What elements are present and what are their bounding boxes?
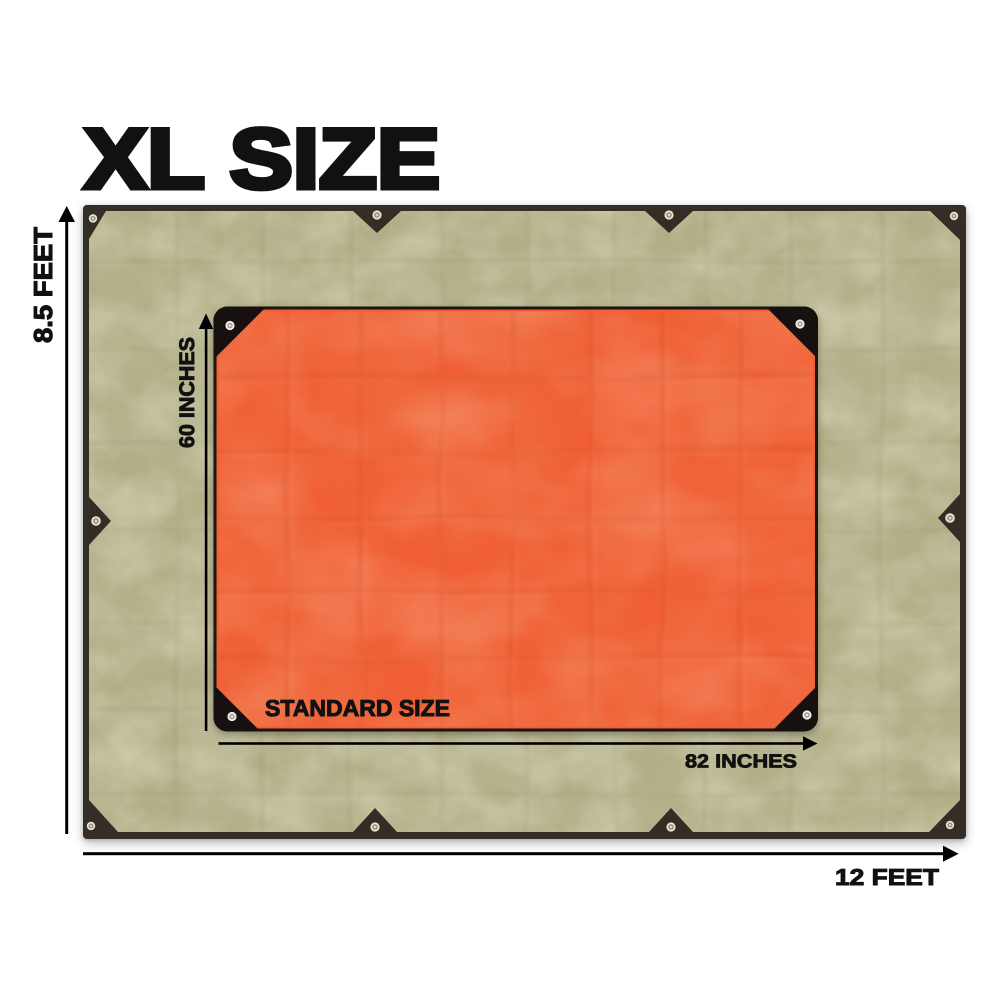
- svg-text:60 INCHES: 60 INCHES: [176, 337, 199, 448]
- svg-text:8.5 FEET: 8.5 FEET: [28, 227, 58, 343]
- svg-text:STANDARD SIZE: STANDARD SIZE: [265, 695, 450, 721]
- svg-text:82 INCHES: 82 INCHES: [685, 752, 797, 773]
- svg-text:XL SIZE: XL SIZE: [84, 112, 440, 207]
- svg-text:12 FEET: 12 FEET: [835, 864, 939, 890]
